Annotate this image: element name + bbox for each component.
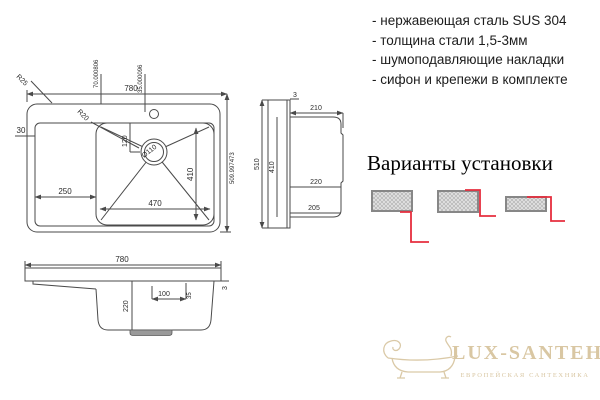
dim-side-bottom-width: 205 bbox=[308, 205, 320, 212]
front-view-drawing bbox=[25, 261, 229, 336]
dim-drain-offset: 120 bbox=[122, 135, 129, 147]
dim-side-depth: 510 bbox=[254, 158, 261, 170]
dim-top-width: 780 bbox=[124, 84, 138, 93]
front-bowl-outline bbox=[96, 281, 214, 330]
front-rim-plate bbox=[25, 268, 221, 281]
dim-depth: 509.997473 bbox=[230, 152, 236, 184]
dim-hole-offset-a: 70.000806 bbox=[94, 59, 100, 88]
faucet-hole bbox=[150, 110, 159, 119]
dim-front-hole-size: 35 bbox=[187, 292, 193, 299]
dim-side-thickness: 3 bbox=[293, 92, 297, 99]
dim-rim-left: 30 bbox=[17, 126, 26, 135]
front-drain-fitting bbox=[130, 330, 172, 336]
dim-side-bowl-height: 220 bbox=[310, 179, 322, 186]
sink-edge-profile bbox=[400, 212, 429, 242]
dim-outer-radius: R25 bbox=[15, 73, 29, 87]
dim-front-thickness: 3 bbox=[222, 286, 229, 290]
dim-front-width: 780 bbox=[115, 255, 129, 264]
watermark-brand: LUX-SANTEH bbox=[452, 342, 598, 365]
install-variant-inset bbox=[438, 190, 496, 216]
dim-inner-radius: R20 bbox=[76, 108, 90, 122]
sink-spec-sheet: - нержавеющая сталь SUS 304 - толщина ст… bbox=[0, 0, 600, 400]
dim-side-top-width: 210 bbox=[310, 105, 322, 112]
watermark-tagline: ЕВРОПЕЙСКАЯ САНТЕХНИКА bbox=[455, 372, 595, 379]
install-variant-overmount bbox=[372, 191, 429, 242]
technical-drawing: 780 70.000806 35.000096 R25 R20 30 120 Ø… bbox=[0, 0, 600, 400]
dim-front-bowl-depth: 220 bbox=[123, 300, 130, 312]
dim-wing-width: 250 bbox=[58, 187, 72, 196]
top-view-drawing bbox=[15, 74, 231, 232]
install-variant-flush bbox=[506, 197, 565, 221]
dim-hole-offset-b: 35.000096 bbox=[138, 64, 144, 93]
bathtub-icon bbox=[384, 336, 458, 378]
dim-bowl-width: 470 bbox=[148, 199, 162, 208]
dim-side-inner-depth: 410 bbox=[269, 161, 276, 173]
dim-bowl-length: 410 bbox=[186, 167, 195, 181]
dim-front-hole-offset: 100 bbox=[158, 291, 170, 298]
countertop-section bbox=[506, 197, 546, 211]
countertop-section bbox=[438, 191, 478, 212]
front-drainboard-edge bbox=[33, 281, 96, 289]
side-bowl-outline bbox=[290, 117, 343, 217]
countertop-section bbox=[372, 191, 412, 211]
